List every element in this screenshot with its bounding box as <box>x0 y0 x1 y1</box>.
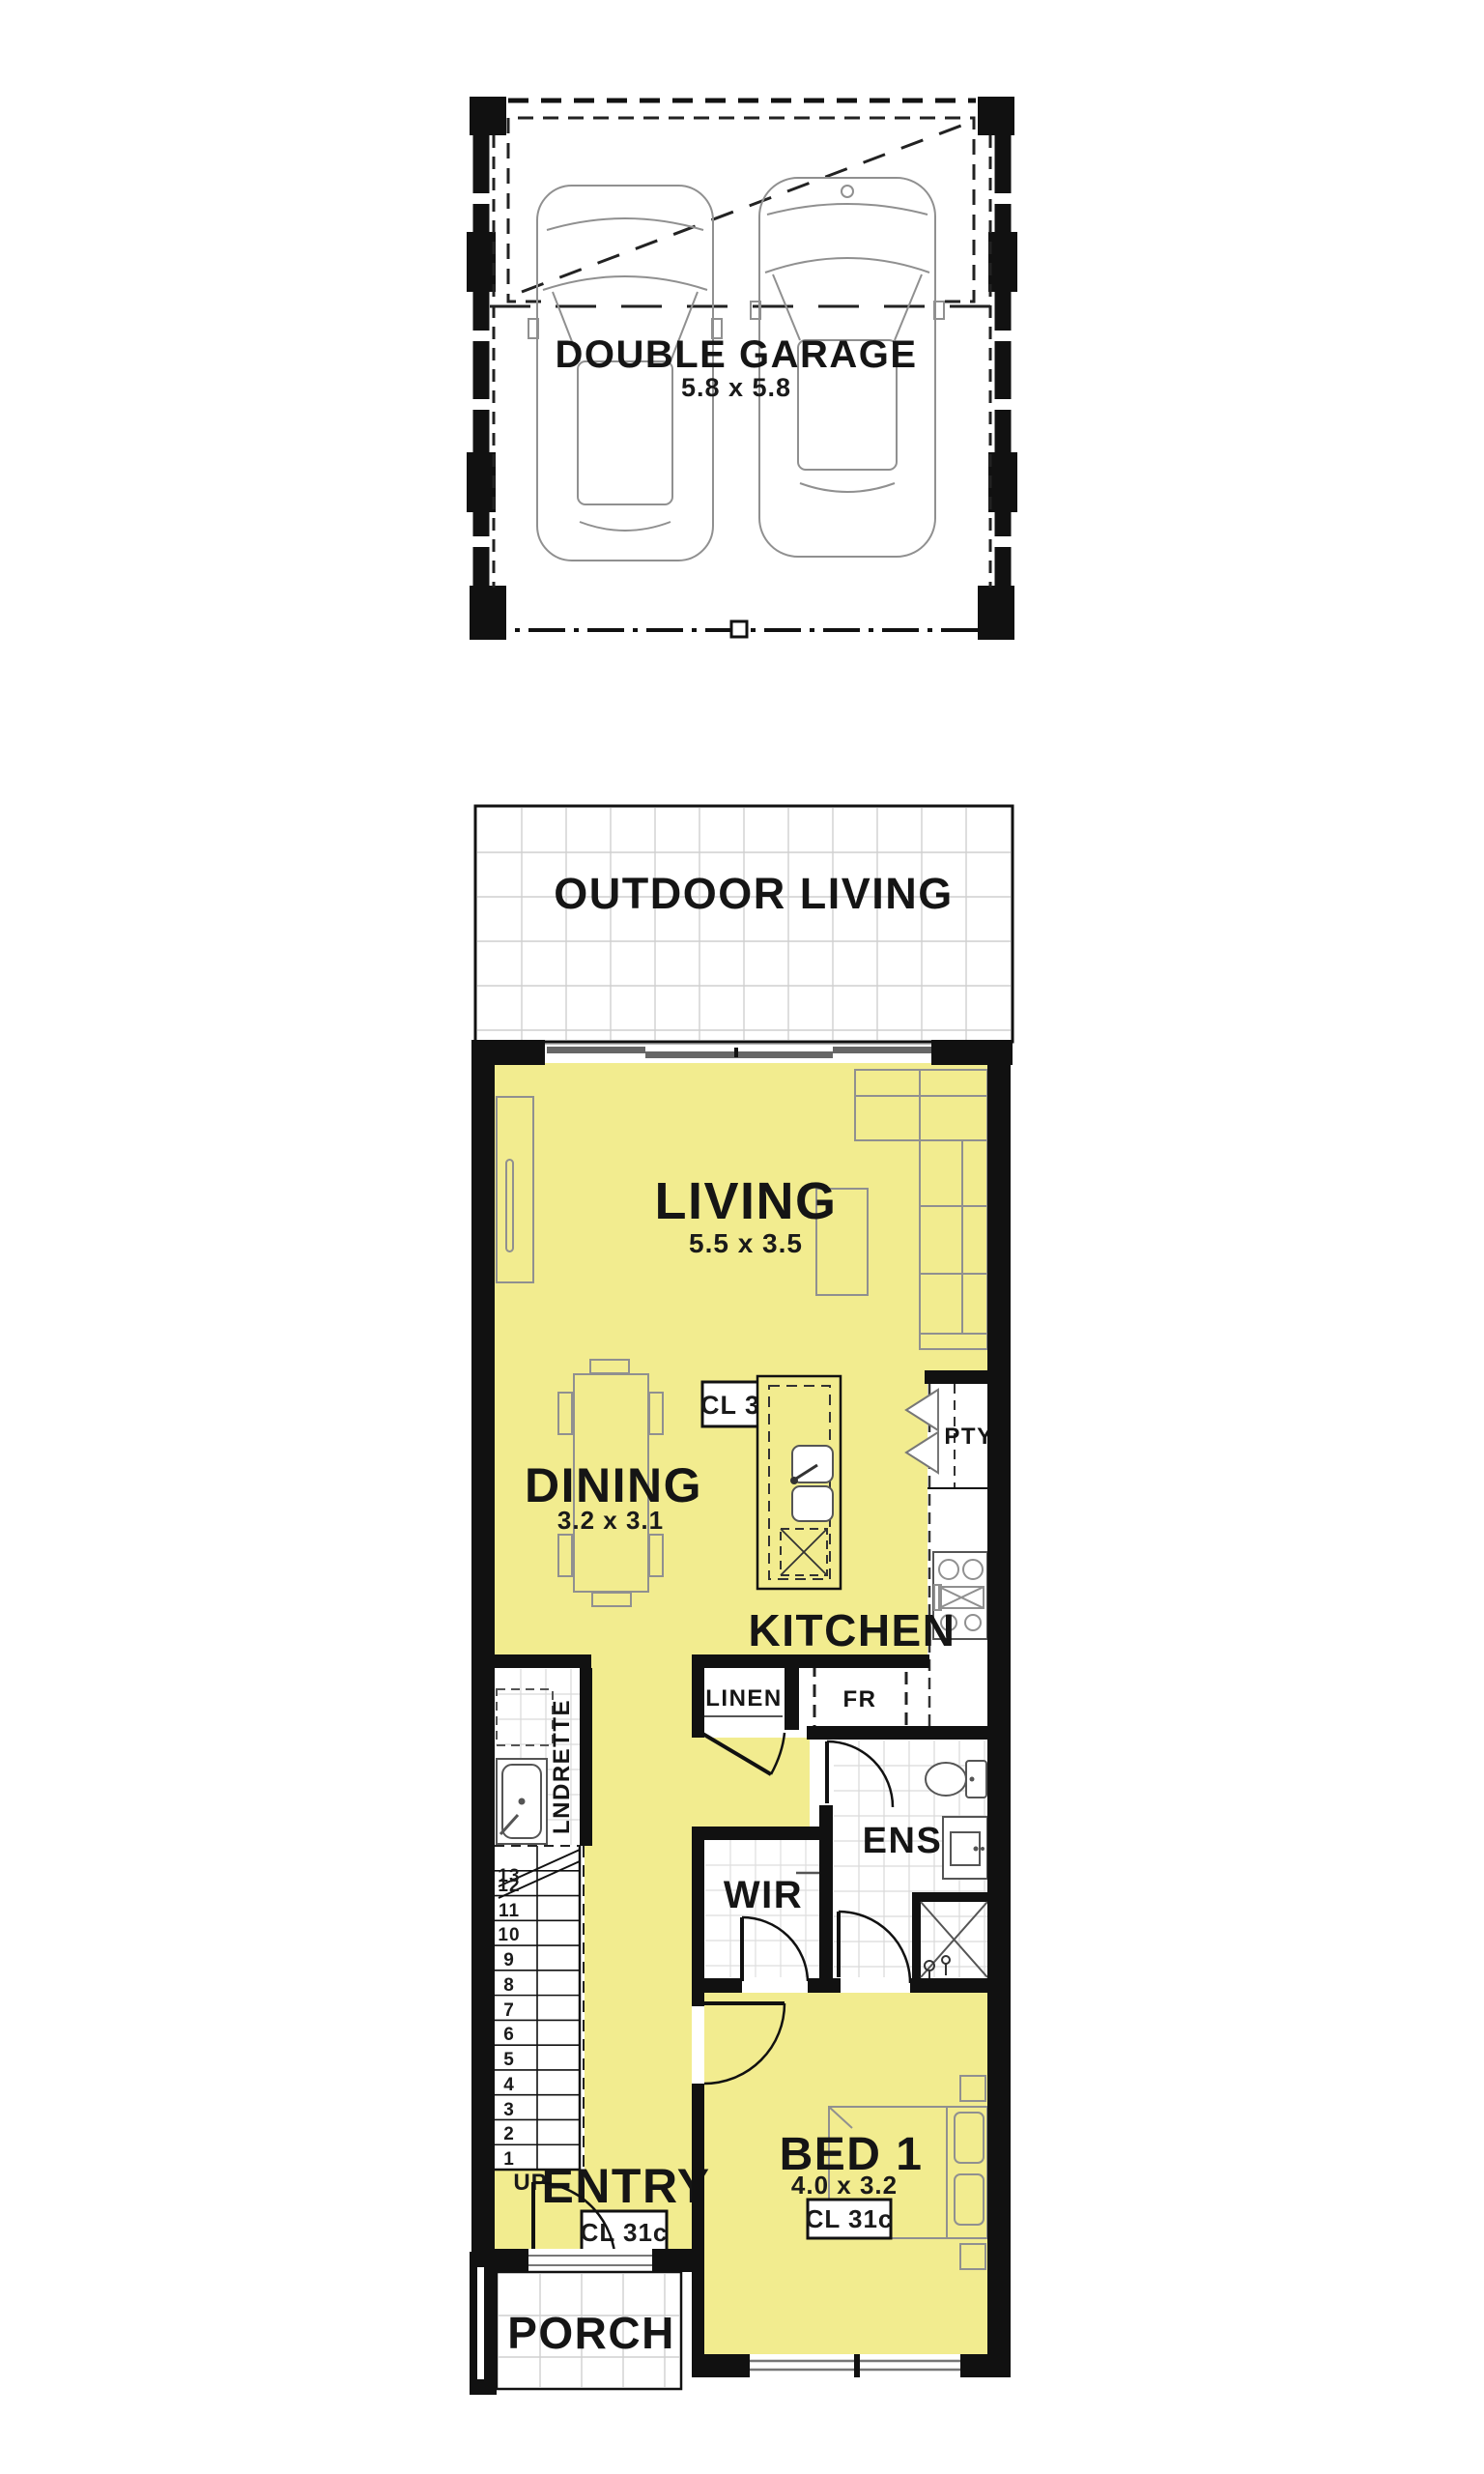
porch: PORCH <box>470 2252 681 2395</box>
wir-label: WIR <box>724 1874 803 1916</box>
garage-dims: 5.8 x 5.8 <box>681 373 791 402</box>
entry-ceiling-label: CL 31c <box>581 2218 669 2247</box>
laundry-tub <box>497 1759 547 1844</box>
sink-bowl-2 <box>792 1486 833 1521</box>
wall-linen-left <box>692 1668 704 1738</box>
staircase: 13 12 11 10 9 8 7 6 5 4 3 2 1 UP <box>495 1846 584 2196</box>
garage-boundary-marker <box>731 621 747 637</box>
tv-unit <box>497 1097 533 1282</box>
wir: WIR <box>724 1873 819 1981</box>
pantry-label: PTY <box>944 1424 993 1450</box>
laundry-overhead-cupboard <box>497 1689 553 1745</box>
wir-door-arc <box>742 1917 808 1981</box>
bed1-dims: 4.0 x 3.2 <box>791 2171 898 2200</box>
stair-num-3: 3 <box>503 2100 515 2120</box>
entry-label: ENTRY <box>541 2159 710 2213</box>
stair-num-12: 12 <box>498 1876 520 1896</box>
stair-num-2: 2 <box>503 2124 515 2144</box>
dining-chair-top <box>590 1360 629 1373</box>
shower <box>912 1892 989 1981</box>
garage-label: DOUBLE GARAGE <box>555 333 917 376</box>
wall-bench-bottom <box>925 1726 987 1740</box>
garage-pier-left1 <box>467 232 496 292</box>
ens-door2-arc <box>839 1912 910 1983</box>
wall-hall-bed1-lower <box>692 2084 704 2354</box>
wall-wir-top <box>692 1827 833 1840</box>
garage: DOUBLE GARAGE 5.8 x 5.8 <box>467 97 1017 640</box>
stair-num-6: 6 <box>503 2025 515 2045</box>
floor-plan-page: DOUBLE GARAGE 5.8 x 5.8 OUTDOOR LIVING <box>0 0 1484 2474</box>
stair-num-10: 10 <box>498 1925 520 1945</box>
bed1-window <box>750 2354 960 2377</box>
stair-numbers: 13 12 11 10 9 8 7 6 5 4 3 2 1 <box>498 1866 520 2170</box>
wall-ens-bottom <box>910 1978 1011 1993</box>
stair-num-11: 11 <box>499 1901 520 1921</box>
ens-door-arc <box>827 1741 893 1807</box>
stair-num-8: 8 <box>503 1975 515 1996</box>
floor-plan: DOUBLE GARAGE 5.8 x 5.8 OUTDOOR LIVING <box>0 0 1484 2474</box>
wall-wir-bottom-right <box>808 1978 841 1993</box>
garage-pier-right1 <box>988 232 1017 292</box>
dining-chair-left2 <box>558 1535 572 1576</box>
stair-num-1: 1 <box>503 2149 515 2170</box>
bedside-table-2 <box>960 2244 985 2269</box>
garage-pier-right2 <box>988 452 1017 512</box>
outdoor-living-label: OUTDOOR LIVING <box>554 869 954 918</box>
living-dims: 5.5 x 3.5 <box>689 1228 803 1258</box>
porch-label: PORCH <box>507 2308 675 2358</box>
ens-label: ENS <box>863 1821 943 1861</box>
vanity <box>943 1817 987 1879</box>
sliding-door <box>545 1044 931 1058</box>
wall-laundry-right <box>580 1668 592 1846</box>
living-label: LIVING <box>654 1172 837 1230</box>
front-door-sill <box>528 2249 652 2272</box>
wall-ens-left <box>819 1805 833 1978</box>
wall-bed1-bottom-left <box>692 2354 750 2377</box>
garage-corner-tr <box>978 97 1014 135</box>
dining-chair-right1 <box>649 1393 663 1434</box>
dining-dims: 3.2 x 3.1 <box>557 1506 664 1535</box>
dining-chair-bottom <box>592 1593 631 1606</box>
open-plan-floor <box>495 1063 989 1668</box>
wall-linen-right <box>785 1668 799 1730</box>
wall-bed1-bottom-right <box>960 2354 1011 2377</box>
laundry: LNDRETTE <box>497 1689 575 1844</box>
dining-chair-right2 <box>649 1535 663 1576</box>
stair-num-9: 9 <box>503 1950 515 1971</box>
linen-label: LINEN <box>705 1685 783 1712</box>
kitchen-label: KITCHEN <box>749 1605 956 1655</box>
wall-laundry-top <box>471 1654 591 1668</box>
laundry-label: LNDRETTE <box>549 1699 575 1834</box>
wall-right <box>987 1040 1011 2377</box>
dining-label: DINING <box>525 1458 702 1512</box>
garage-pier-left2 <box>467 452 496 512</box>
wall-hall-bed1-upper <box>692 1840 704 2006</box>
wall-bench-top <box>925 1370 987 1384</box>
dining-chair-left1 <box>558 1393 572 1434</box>
porch-pier-slit <box>477 2267 484 2379</box>
toilet <box>926 1761 986 1798</box>
fridge-label: FR <box>843 1686 877 1712</box>
wall-linen-top <box>692 1654 929 1668</box>
bedside-table-1 <box>960 2076 985 2101</box>
stair-num-4: 4 <box>503 2075 515 2095</box>
bed1-ceiling-label: CL 31c <box>806 2204 894 2233</box>
ensuite: ENS <box>827 1741 989 1983</box>
stair-num-5: 5 <box>503 2050 515 2070</box>
stair-num-7: 7 <box>503 2000 515 2021</box>
garage-corner-tl <box>470 97 506 135</box>
outdoor-living: OUTDOOR LIVING <box>475 806 1013 1042</box>
